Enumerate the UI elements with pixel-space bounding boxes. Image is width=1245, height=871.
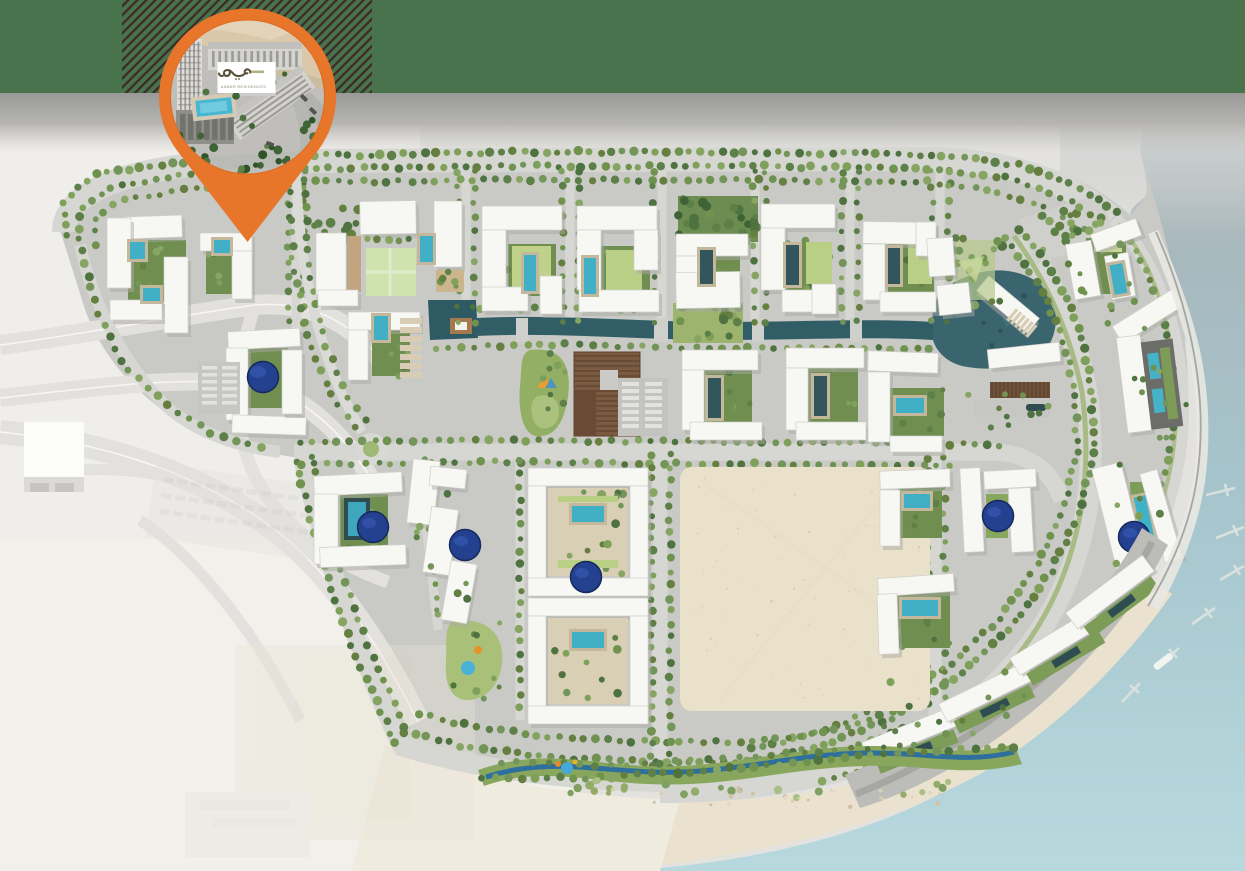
svg-text:ANBAR RESIDENCES: ANBAR RESIDENCES <box>221 85 266 89</box>
